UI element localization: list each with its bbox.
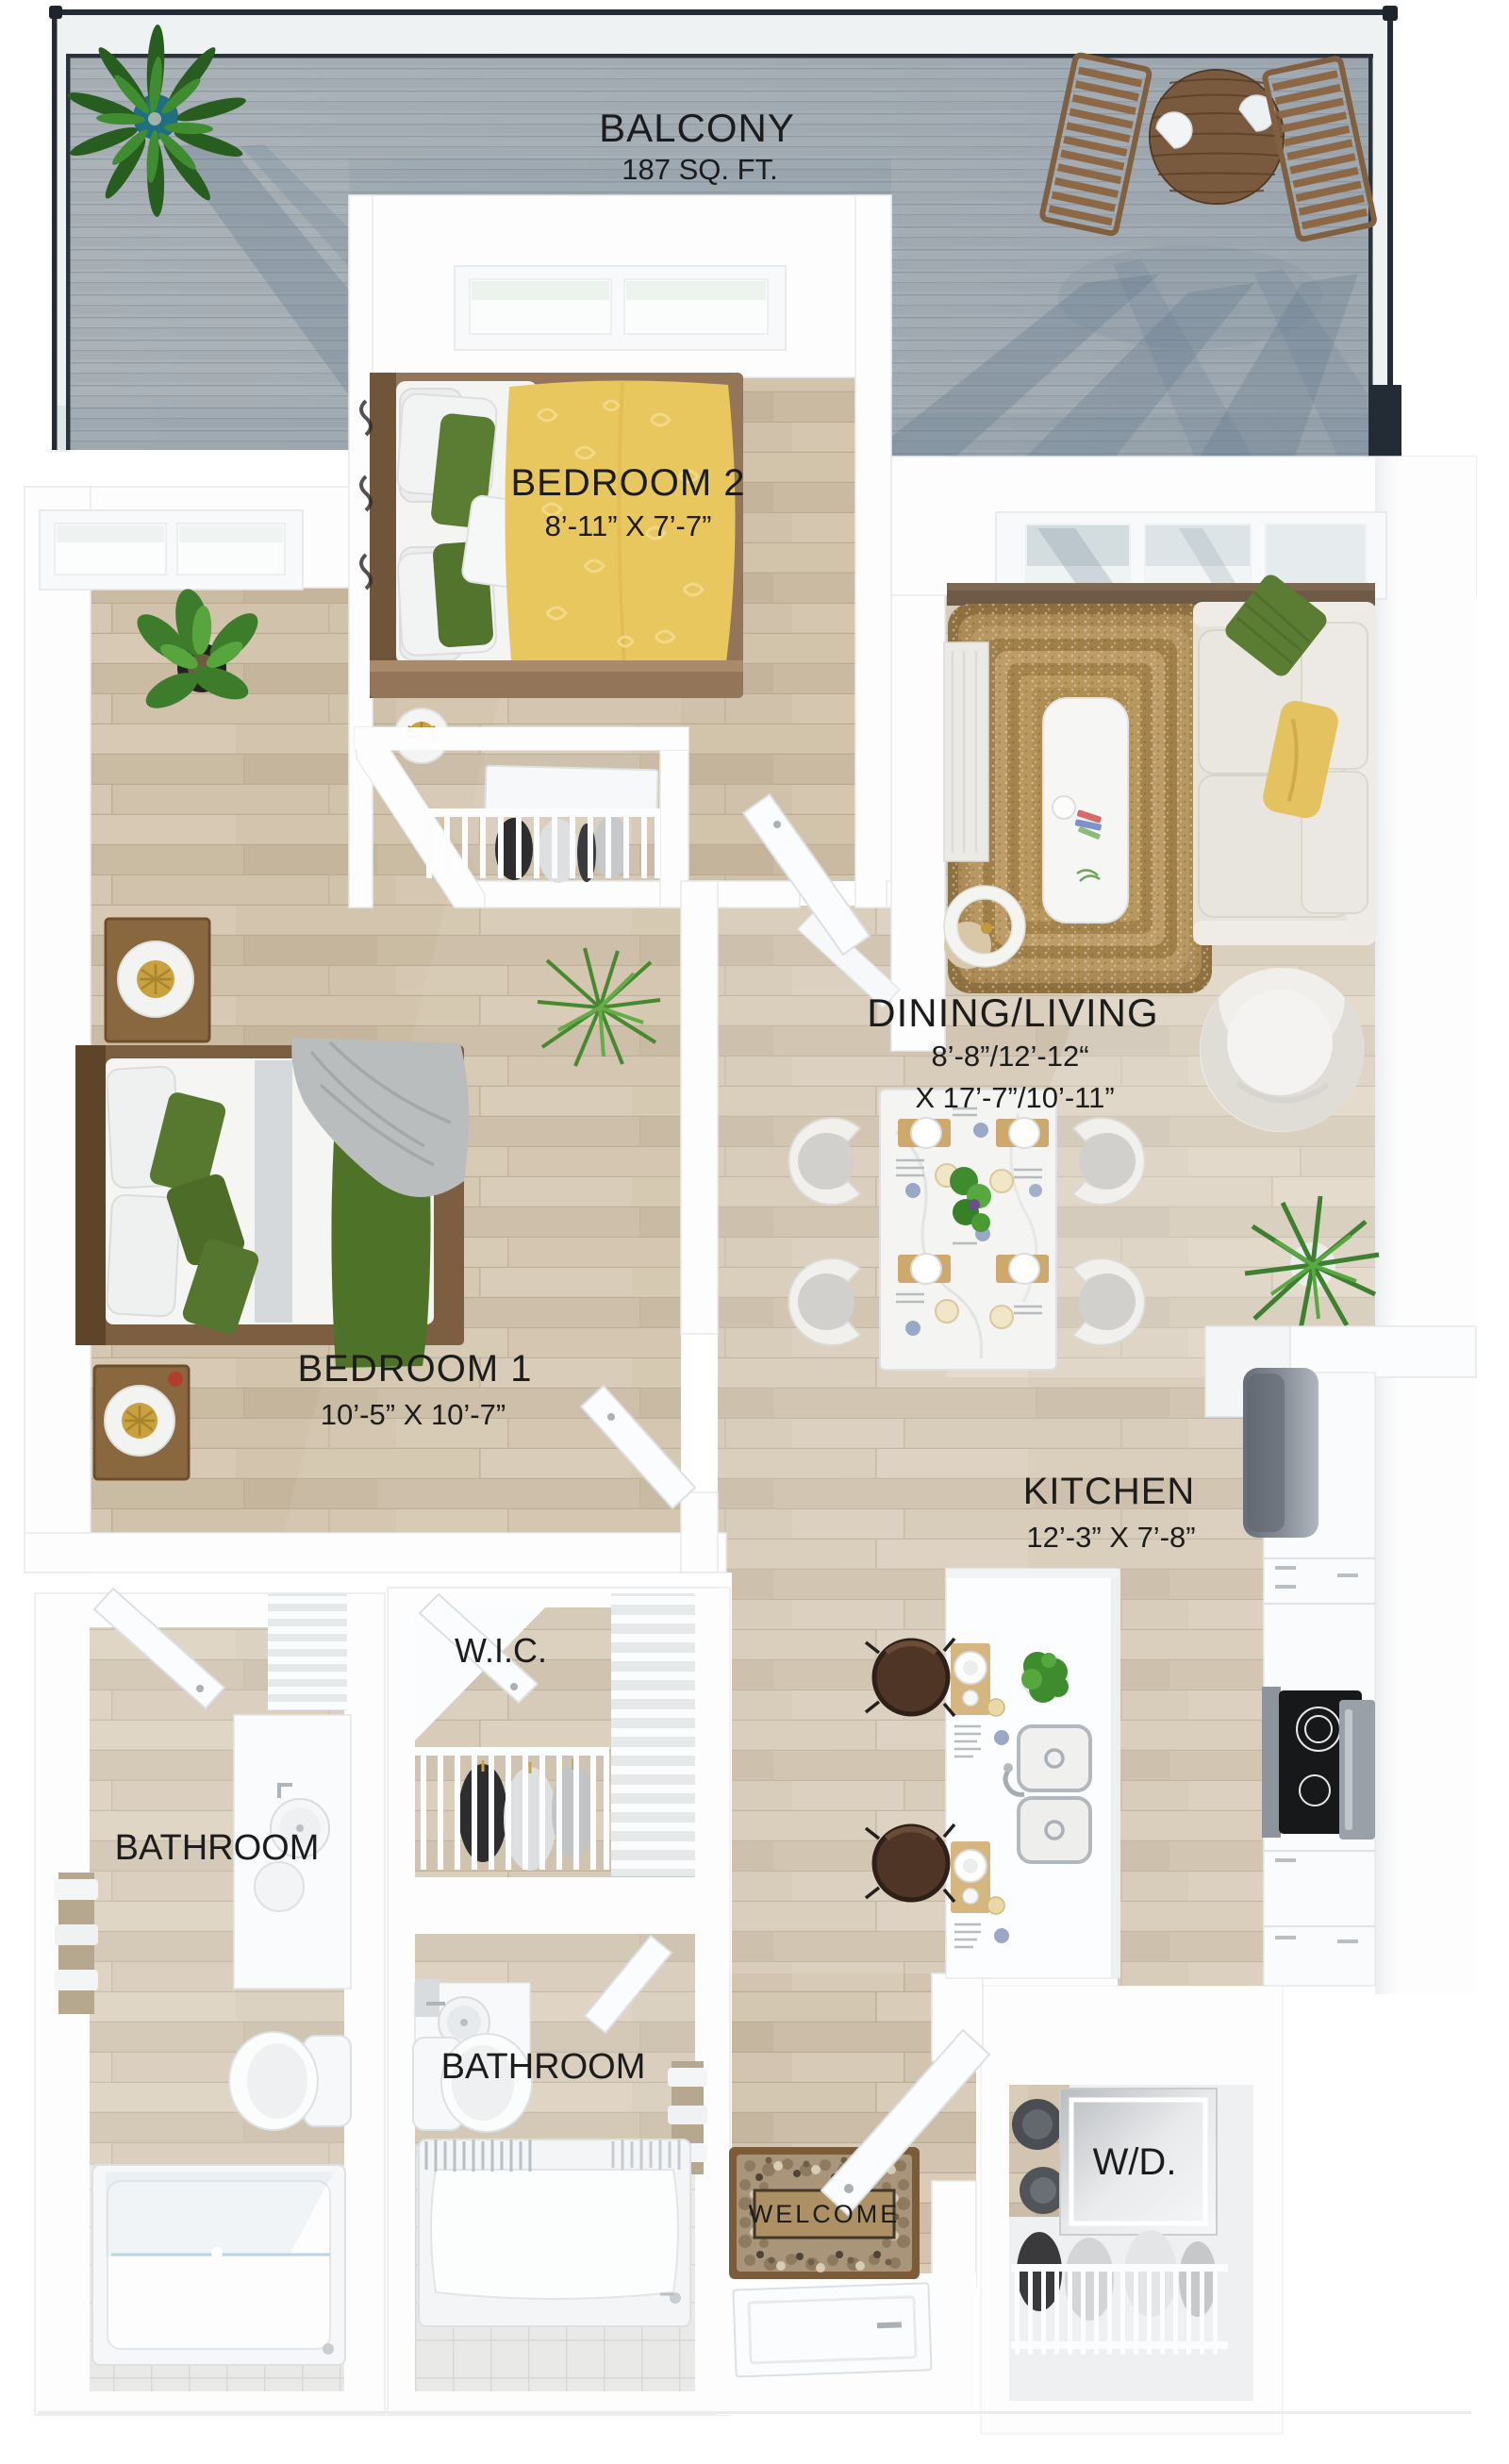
svg-text:X 17’-7”/10’-11”: X 17’-7”/10’-11” [915, 1081, 1114, 1114]
svg-text:W.I.C.: W.I.C. [455, 1631, 547, 1670]
svg-text:187 SQ. FT.: 187 SQ. FT. [622, 153, 777, 186]
svg-text:BATHROOM: BATHROOM [115, 1828, 320, 1868]
svg-text:WELCOME: WELCOME [749, 2200, 901, 2228]
svg-text:DINING/LIVING: DINING/LIVING [867, 991, 1158, 1035]
svg-text:BEDROOM 2: BEDROOM 2 [510, 462, 745, 504]
svg-text:BEDROOM 1: BEDROOM 1 [297, 1348, 532, 1390]
svg-text:BALCONY: BALCONY [599, 106, 795, 150]
svg-text:8’-8”/12’-12“: 8’-8”/12’-12“ [931, 1040, 1088, 1073]
svg-text:BATHROOM: BATHROOM [441, 2047, 646, 2087]
svg-text:W/D.: W/D. [1093, 2141, 1177, 2183]
svg-text:12’-3” X 7’-8”: 12’-3” X 7’-8” [1026, 1521, 1195, 1554]
svg-text:8’-11” X 7’-7”: 8’-11” X 7’-7” [545, 509, 712, 542]
svg-text:KITCHEN: KITCHEN [1023, 1471, 1196, 1512]
svg-text:10’-5” X 10’-7”: 10’-5” X 10’-7” [321, 1398, 506, 1431]
